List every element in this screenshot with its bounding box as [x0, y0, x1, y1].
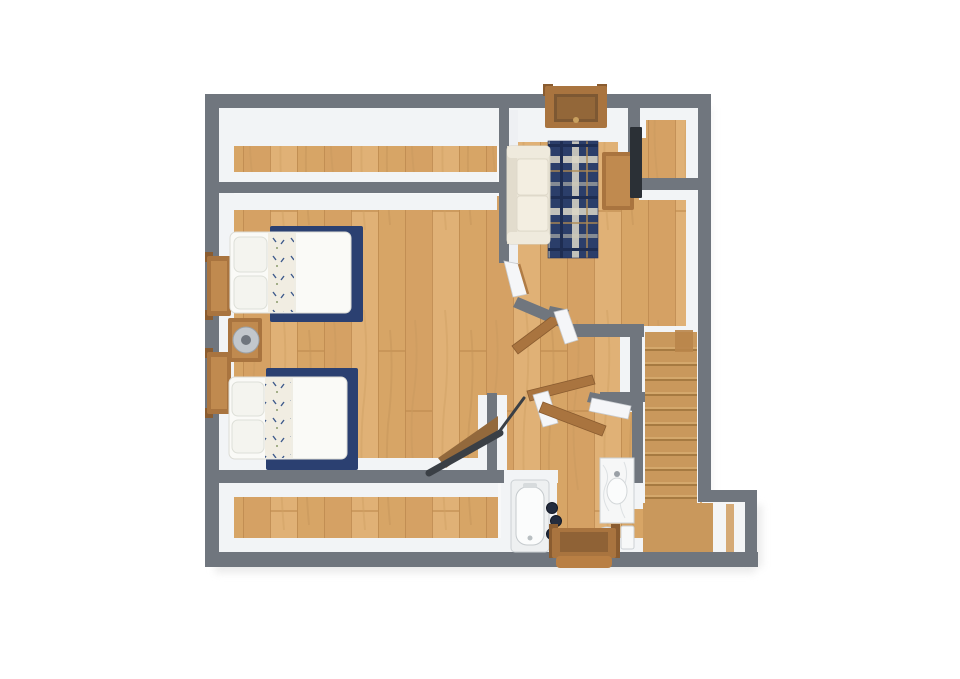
dresser — [543, 84, 607, 128]
wall-left — [205, 94, 219, 565]
floor-plan-canvas — [0, 0, 960, 679]
entry-door — [549, 524, 620, 568]
floor-plan — [0, 0, 960, 679]
bathtub — [511, 480, 549, 552]
sofa — [507, 146, 550, 244]
sink-vanity — [600, 458, 634, 523]
tv-stand — [602, 152, 634, 210]
floor-entry-nook — [646, 116, 692, 178]
sofa-cushion — [517, 159, 548, 195]
headboard-bed-2 — [205, 348, 231, 418]
headboard-bed-1 — [205, 252, 231, 320]
pillow — [234, 237, 267, 272]
wall-upper-closet — [205, 182, 507, 193]
stair-landing — [643, 503, 713, 552]
entry-step — [556, 556, 612, 568]
pillow — [234, 276, 267, 309]
wall-right — [698, 94, 711, 497]
wall-bump-right — [745, 490, 757, 567]
stair-newel — [675, 330, 693, 352]
plaid-rug — [548, 141, 598, 258]
table-lamp — [233, 327, 259, 353]
sofa-cushion — [517, 196, 548, 231]
pillow — [232, 420, 264, 453]
tv — [630, 127, 642, 198]
floor-upper-closet — [228, 146, 497, 174]
bed-1 — [230, 232, 351, 313]
bed-2 — [229, 377, 347, 459]
wall-bottom — [205, 552, 758, 567]
wall-lower-closet — [205, 470, 504, 483]
pillow — [232, 382, 264, 416]
